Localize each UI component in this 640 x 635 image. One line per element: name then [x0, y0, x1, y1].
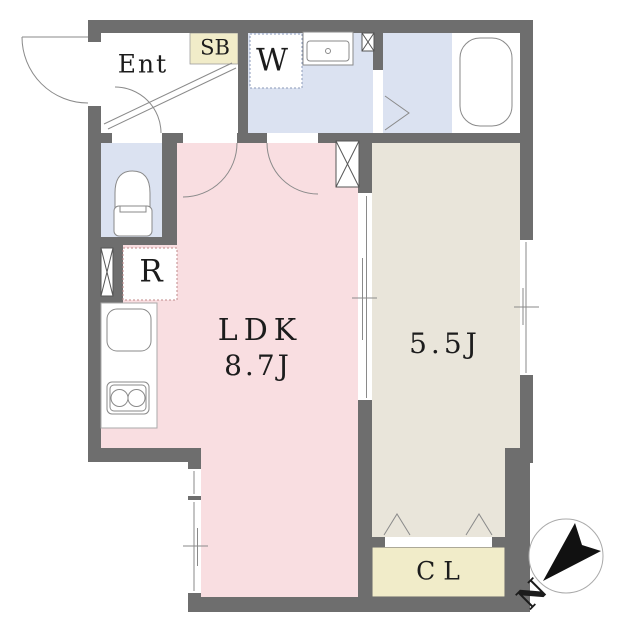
- ent-ldk-door-opening: [183, 133, 237, 143]
- wall-closet-stub-right: [492, 537, 505, 547]
- toilet-seat-line: [120, 206, 146, 212]
- wall-step: [88, 448, 201, 462]
- ldk-label: LDK: [218, 316, 302, 346]
- stove-burner: [111, 390, 128, 407]
- wall-top: [88, 20, 533, 33]
- entrance-door-opening: [88, 42, 101, 106]
- shoe-box-label: SB: [200, 38, 230, 59]
- kitchen-sink: [107, 309, 151, 351]
- entrance-label: Ent: [118, 52, 168, 77]
- ldk-window-mullion: [188, 496, 201, 500]
- wall-divider-lower: [358, 400, 372, 612]
- wall-left-stub: [88, 20, 101, 42]
- entrance-door-arc: [22, 37, 88, 103]
- wall-ent-washroom: [238, 20, 248, 133]
- bathroom-door-opening: [373, 70, 383, 133]
- wall-closet-stub-left: [372, 537, 385, 547]
- refrigerator-label: R: [139, 257, 162, 288]
- toilet-door-opening: [112, 133, 162, 143]
- washroom-ldk-door-opening: [267, 133, 318, 143]
- ldk-bedroom-sliding-door: [358, 193, 372, 400]
- toilet-bowl: [115, 171, 150, 208]
- vanity-drain: [326, 49, 331, 54]
- stove-burner: [128, 390, 145, 407]
- floor-plan-drawing: [0, 0, 640, 635]
- bathtub: [460, 38, 512, 126]
- wall-toilet-bottom: [88, 237, 177, 245]
- closet-opening: [385, 537, 492, 547]
- floors: [101, 33, 520, 597]
- wall-divider-upper: [358, 133, 372, 193]
- wall-left-main: [88, 106, 101, 462]
- washroom-label: W: [256, 46, 288, 77]
- ldk-size-label: 8.7J: [224, 352, 292, 380]
- bedroom-size-label: 5.5J: [409, 330, 481, 358]
- wall-toilet-right: [162, 133, 177, 245]
- floor-plan: Ent SB W R LDK 8.7J 5.5J CL N: [0, 0, 640, 635]
- closet-label: CL: [416, 559, 468, 584]
